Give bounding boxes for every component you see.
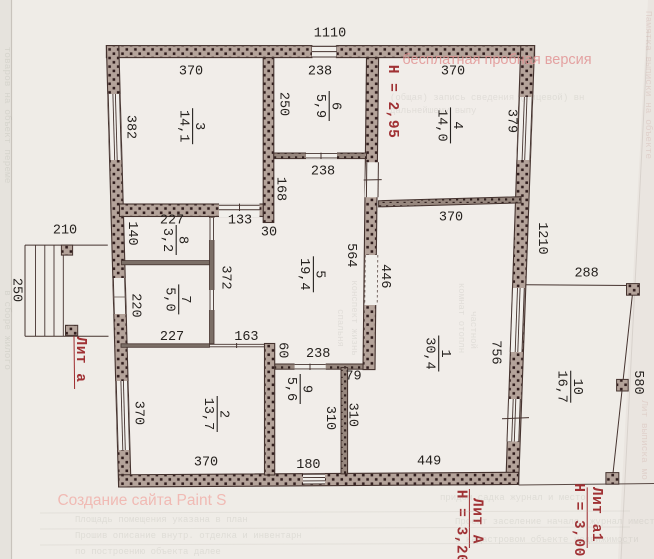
svg-text:Проект заселение начало, жур: Проект заселение начало, журнал иместами: [455, 517, 654, 527]
svg-text:449: 449: [417, 455, 441, 470]
svg-text:370: 370: [179, 65, 203, 80]
svg-text:564: 564: [343, 243, 358, 267]
svg-text:5,0: 5,0: [162, 287, 177, 311]
svg-text:Лит а: Лит а: [72, 336, 88, 382]
svg-text:спальня: спальня: [335, 309, 345, 347]
svg-text:3,2: 3,2: [159, 228, 174, 252]
svg-text:по построению объекта далее: по построению объекта далее: [75, 547, 221, 557]
svg-text:1210: 1210: [534, 222, 549, 254]
svg-text:140: 140: [124, 221, 139, 245]
svg-text:379: 379: [504, 109, 519, 133]
svg-text:30: 30: [261, 226, 277, 241]
svg-text:19,4: 19,4: [296, 258, 311, 290]
svg-text:30,4: 30,4: [422, 337, 437, 369]
svg-text:133: 133: [228, 214, 252, 229]
svg-text:382: 382: [123, 115, 138, 139]
svg-text:60: 60: [274, 342, 289, 358]
svg-text:придом садка журнал и место: придом садка журнал и место: [440, 493, 586, 503]
svg-text:комнат отоплн: комнат отоплн: [456, 283, 466, 353]
svg-text:13,7: 13,7: [200, 398, 215, 430]
svg-text:Лит а1: Лит а1: [588, 487, 604, 542]
svg-text:370: 370: [439, 211, 463, 226]
svg-text:580: 580: [630, 370, 645, 394]
svg-text:5,9: 5,9: [312, 94, 327, 118]
svg-text:220: 220: [127, 293, 142, 317]
svg-text:Создание сайта Paint S: Создание сайта Paint S: [57, 492, 226, 509]
svg-text:180: 180: [296, 458, 320, 473]
svg-text:бесплатная пробная версия: бесплатная пробная версия: [402, 52, 591, 68]
svg-text:372: 372: [218, 265, 233, 289]
svg-text:227: 227: [160, 214, 184, 229]
svg-text:конспект жизнь: конспект жизнь: [349, 280, 359, 356]
svg-text:756: 756: [488, 340, 503, 364]
svg-text:446: 446: [377, 264, 392, 288]
svg-text:дальнейшему выпу: дальнейшему выпу: [390, 106, 477, 116]
svg-text:238: 238: [311, 165, 335, 180]
svg-text:370: 370: [194, 456, 218, 471]
svg-text:5,6: 5,6: [283, 377, 298, 401]
svg-text:238: 238: [306, 347, 330, 362]
svg-text:Прошив описание внутр. отделк: Прошив описание внутр. отделка и инвента…: [75, 531, 302, 541]
svg-text:238: 238: [308, 65, 332, 80]
svg-text:14,1: 14,1: [175, 110, 190, 142]
svg-text:Лит выписка мо: Лит выписка мо: [639, 399, 650, 480]
svg-text:210: 210: [53, 224, 77, 239]
svg-text:310: 310: [322, 406, 337, 430]
svg-text:310: 310: [345, 403, 360, 427]
svg-text:370: 370: [130, 401, 145, 425]
svg-text:(общая) запись сведения (лицев: (общая) запись сведения (лицевой) вн: [390, 93, 584, 103]
svg-text:227: 227: [160, 330, 184, 345]
svg-text:Площадь помещения указана в п: Площадь помещения указана в план: [75, 515, 248, 525]
svg-text:частной: частной: [468, 311, 478, 349]
svg-text:288: 288: [574, 267, 598, 282]
svg-text:Памятка выписки на объекте: Памятка выписки на объекте: [643, 11, 654, 160]
svg-text:163: 163: [234, 330, 258, 345]
svg-text:250: 250: [276, 92, 291, 116]
svg-text:1110: 1110: [314, 27, 346, 42]
svg-text:16,7: 16,7: [554, 370, 569, 402]
svg-text:в сборе жилого: в сборе жилого: [2, 290, 13, 370]
svg-text:товаров на объект переме: товаров на объект переме: [2, 47, 13, 184]
svg-text:79: 79: [345, 369, 361, 384]
svg-text:168: 168: [273, 177, 288, 201]
